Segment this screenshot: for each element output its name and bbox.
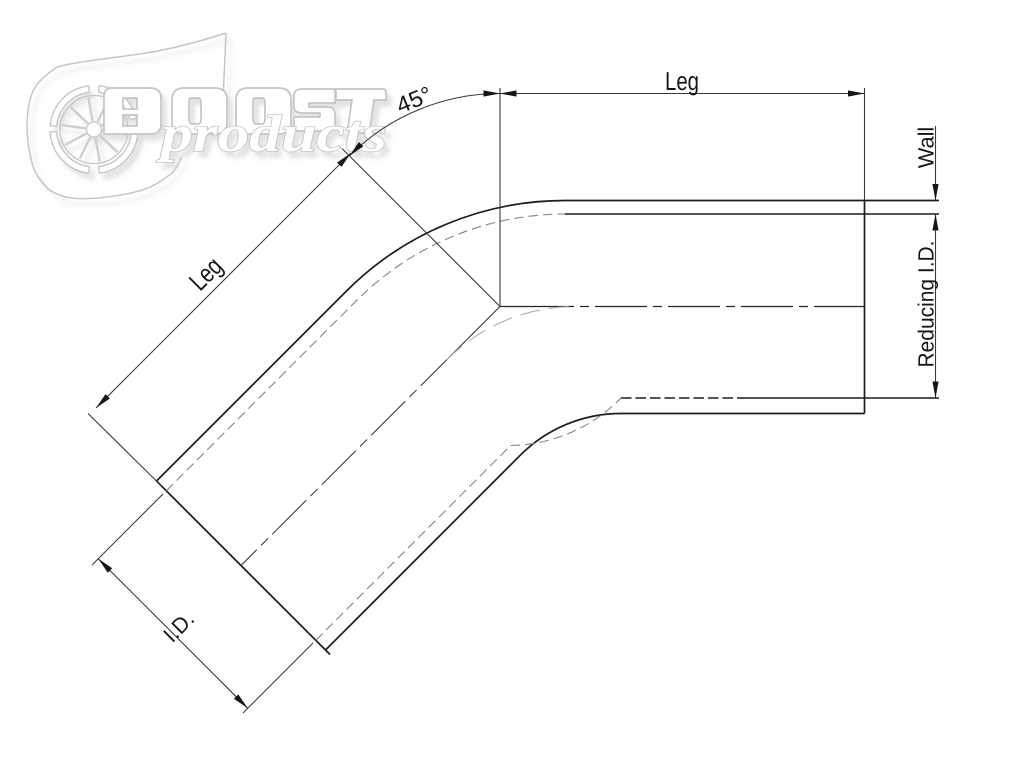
svg-text:products: products: [156, 106, 387, 163]
svg-text:Leg: Leg: [665, 66, 699, 96]
svg-text:Reducing I.D.: Reducing I.D.: [914, 241, 939, 368]
svg-text:Wall: Wall: [914, 127, 939, 169]
